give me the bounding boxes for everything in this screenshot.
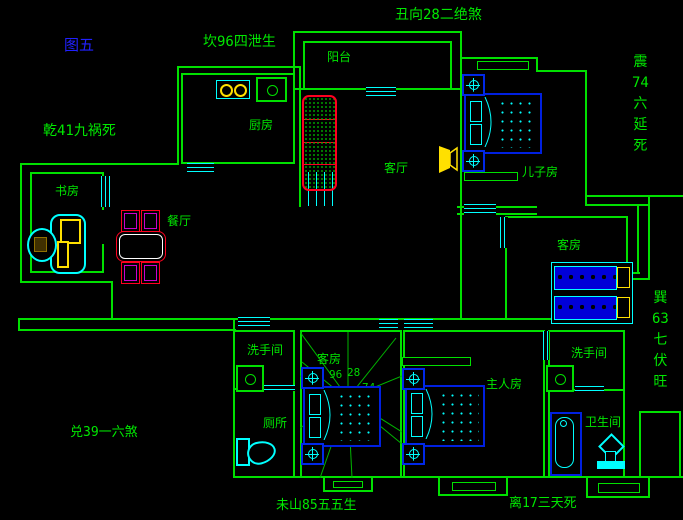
wall: [293, 73, 295, 164]
twin-beds: [551, 262, 633, 324]
drain-icon: [267, 85, 278, 96]
pillow: [617, 267, 630, 288]
window: [187, 163, 214, 174]
room-label-living: 客厅: [384, 162, 408, 174]
pillow: [617, 297, 630, 318]
bed: [554, 296, 617, 320]
room-label-guest-center: 客房: [317, 353, 341, 365]
wall: [233, 318, 235, 478]
wall: [293, 330, 295, 478]
wall: [177, 66, 301, 68]
wall: [303, 41, 452, 43]
bed: [464, 93, 542, 154]
compass-number: 96: [329, 369, 342, 380]
mattress: [439, 391, 479, 441]
ceiling-fan-icon: [462, 150, 485, 172]
compass-number: 28: [347, 367, 360, 378]
ceiling-fan-icon: [402, 443, 425, 465]
drain-icon: [245, 374, 256, 385]
wall: [623, 330, 625, 478]
blanket-arc: [322, 390, 336, 440]
floor-plan-canvas: 96 28 41 74 39 63 85 17: [0, 0, 683, 520]
mattress: [337, 392, 375, 441]
ceiling-fan-icon: [402, 368, 425, 390]
window: [575, 386, 604, 393]
annotation-qian: 乾41九祸死: [43, 124, 116, 138]
wall: [111, 281, 113, 320]
pillow: [411, 393, 423, 414]
wall: [181, 73, 183, 164]
annotation-char: 死: [633, 139, 647, 153]
annotation-dui: 兑39一六煞: [70, 426, 138, 439]
kitchen-sink: [256, 77, 287, 102]
annotation-char: 六: [633, 97, 647, 111]
sink: [546, 365, 574, 392]
wall: [625, 476, 683, 478]
wall: [102, 244, 104, 273]
annotation-char: 74: [632, 76, 649, 90]
fan-glyph: [404, 445, 423, 463]
wall: [233, 330, 295, 332]
wall: [177, 66, 179, 165]
fan-glyph: [464, 76, 483, 94]
room-label-master: 主人房: [486, 378, 522, 390]
window: [464, 204, 496, 216]
door-threshold: [262, 385, 295, 391]
annotation-li: 离17三天死: [509, 497, 577, 510]
wall: [323, 476, 325, 492]
room-label-study: 书房: [55, 185, 79, 197]
chair: [121, 262, 140, 284]
bed: [405, 385, 485, 447]
wall: [536, 57, 538, 72]
wall: [586, 476, 588, 498]
drain-icon: [560, 420, 567, 427]
stove: [216, 80, 250, 99]
annotation-char: 63: [652, 312, 669, 326]
wall: [536, 70, 587, 72]
wall: [20, 281, 113, 283]
room-label-toilet: 厕所: [263, 417, 287, 429]
annotation-chou: 丑向28二绝煞: [395, 8, 482, 22]
room-label-dining: 餐厅: [167, 215, 191, 227]
wall: [506, 476, 508, 496]
computer-icon: [34, 237, 47, 252]
wall: [585, 195, 683, 197]
annotation-char: 旺: [653, 375, 667, 389]
fan-glyph: [464, 152, 483, 170]
wall: [303, 41, 305, 90]
wall: [18, 329, 236, 331]
room-label-washroom-right: 洗手间: [571, 347, 607, 359]
wall: [18, 318, 626, 320]
wall: [648, 476, 650, 498]
wall: [548, 330, 625, 332]
table-top: [119, 234, 163, 259]
wall: [438, 494, 508, 496]
bed: [303, 386, 381, 447]
ceiling-fan-icon: [301, 367, 324, 389]
drain-icon: [555, 374, 566, 385]
pillow: [470, 124, 482, 145]
door-window: [500, 217, 508, 248]
wall: [20, 163, 179, 165]
room-label-bathroom: 卫生间: [585, 416, 621, 428]
figure-label: 图五: [64, 38, 94, 53]
annotation-kan: 坎96四泄生: [203, 35, 276, 49]
bed: [554, 266, 617, 290]
fan-glyph: [303, 445, 322, 463]
room-label-balcony: 阳台: [327, 51, 351, 63]
bathtub: [550, 412, 582, 476]
fan-glyph: [303, 369, 322, 387]
pc-tower-icon: [57, 241, 69, 268]
annotation-char: 七: [653, 333, 667, 347]
wall: [403, 330, 545, 332]
annotation-weishan: 未山85五五生: [276, 499, 357, 512]
pillow: [470, 101, 482, 122]
bay-window: [598, 483, 640, 493]
room-label-kitchen: 厨房: [249, 119, 273, 131]
window: [238, 317, 270, 328]
chair: [141, 262, 160, 284]
bay-window: [333, 481, 363, 488]
wall: [323, 490, 373, 492]
dining-table: [116, 231, 166, 262]
wall: [460, 57, 538, 59]
closet-shelf: [402, 357, 471, 366]
ceiling-fan-icon: [301, 443, 324, 465]
sofa: [302, 95, 337, 191]
wall: [18, 318, 20, 331]
pillow: [411, 416, 423, 437]
window: [366, 87, 396, 97]
window: [101, 176, 111, 207]
pillow: [309, 417, 321, 438]
fan-glyph: [404, 370, 423, 388]
wall: [20, 163, 22, 283]
annotation-xun: 巽 63 七 伏 旺: [652, 291, 669, 389]
wall: [639, 413, 641, 478]
wall: [505, 216, 628, 218]
closet-shelf: [477, 61, 529, 70]
annotation-char: 伏: [653, 354, 667, 368]
wall: [637, 204, 639, 274]
ceiling-fan-icon: [462, 74, 485, 96]
wall: [585, 204, 650, 206]
chair: [121, 210, 140, 232]
annotation-char: 延: [633, 118, 647, 132]
toilet-mat: [597, 461, 625, 469]
wall: [450, 41, 452, 90]
wall: [181, 73, 295, 75]
annotation-char: 震: [633, 55, 647, 69]
wall: [639, 411, 681, 413]
wall: [438, 476, 440, 496]
chair: [141, 210, 160, 232]
annotation-zhen: 震 74 六 延 死: [632, 55, 649, 153]
wall: [371, 476, 373, 492]
blanket-arc: [424, 389, 438, 439]
burner-icon: [220, 84, 233, 97]
wall: [586, 496, 650, 498]
room-label-guest-right: 客房: [557, 239, 581, 251]
room-label-washroom-left: 洗手间: [247, 344, 283, 356]
door-window: [543, 331, 549, 360]
blanket-arc: [483, 97, 497, 147]
wall: [648, 195, 650, 280]
window: [379, 319, 398, 329]
annotation-char: 巽: [653, 291, 667, 305]
wall: [585, 70, 587, 206]
bay-window: [452, 482, 496, 491]
sink: [236, 365, 264, 392]
room-label-son-room: 儿子房: [522, 166, 558, 178]
pillow: [309, 394, 321, 415]
wall: [679, 411, 681, 478]
mattress: [498, 99, 536, 148]
burner-icon: [234, 84, 247, 97]
wall: [293, 31, 462, 33]
wall: [30, 172, 104, 174]
wall: [299, 66, 301, 207]
window: [404, 319, 433, 329]
closet-shelf: [464, 172, 518, 181]
speaker-icon: [438, 145, 459, 174]
